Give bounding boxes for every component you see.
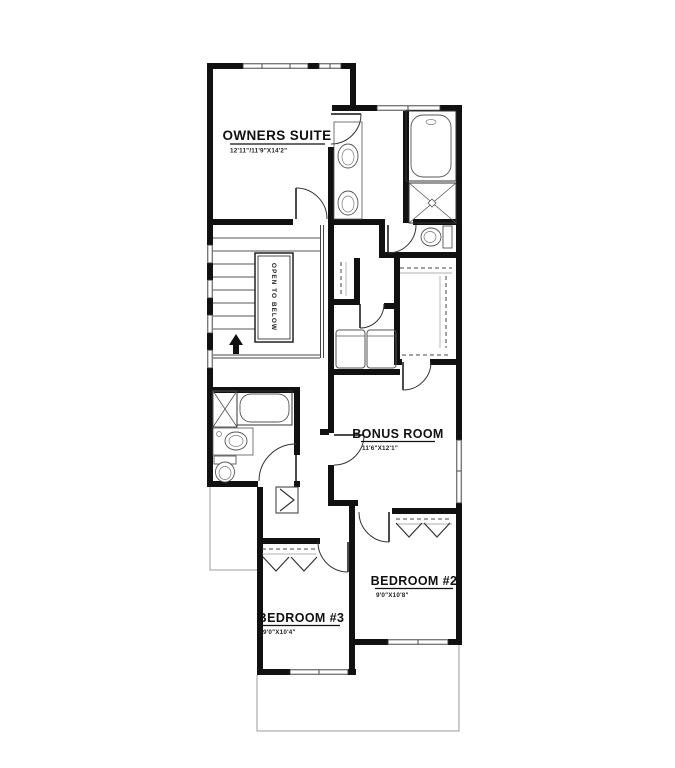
bathtub-icon	[406, 111, 456, 181]
wall-segment	[394, 258, 400, 365]
toilet-icon	[214, 456, 236, 482]
door-arc	[331, 114, 361, 144]
double-vanity	[334, 122, 362, 219]
sink-icon	[338, 191, 358, 215]
wall-segment	[328, 299, 360, 305]
wall-segment	[413, 219, 456, 225]
bifold-door	[263, 557, 317, 571]
wall-segment	[207, 219, 293, 225]
wall-segment	[294, 387, 300, 455]
window	[457, 440, 461, 503]
wall-segment	[328, 369, 400, 375]
wall-segment	[430, 359, 462, 365]
wall-segment	[348, 669, 356, 675]
linen-shelf-icon	[213, 391, 237, 427]
wall-segment	[207, 63, 213, 245]
wall-segment	[257, 669, 290, 675]
linen-closet	[276, 487, 298, 513]
wall-segment	[320, 429, 329, 435]
door-arc	[360, 304, 384, 328]
wall-segment	[354, 258, 360, 305]
window	[243, 64, 308, 68]
window	[377, 106, 440, 110]
wall-segment	[350, 639, 388, 645]
room-label-owners-suite: OWNERS SUITE 12'11"/11'9"X14'2"	[222, 128, 331, 155]
wall-segment	[207, 481, 258, 487]
wall-segment	[328, 219, 385, 225]
wall-segment	[392, 508, 456, 514]
room-label-bedroom-2: BEDROOM #2 9'0"X10'8"	[371, 574, 458, 599]
window	[208, 280, 212, 298]
window	[290, 670, 348, 674]
up-arrow-icon	[229, 334, 243, 354]
room-dims: 9'0"X10'8"	[376, 592, 409, 599]
room-name: BEDROOM #2	[371, 574, 458, 588]
shower-icon	[409, 183, 456, 223]
stairs: OPEN TO BELOW	[213, 225, 324, 358]
window	[319, 64, 341, 68]
wall-segment	[328, 465, 334, 506]
open-to-below-box: OPEN TO BELOW	[255, 253, 293, 342]
door-arc	[259, 444, 296, 481]
bifold-door	[396, 523, 450, 537]
wall-segment	[207, 368, 213, 487]
wall-segment	[328, 147, 334, 375]
wall-segment	[349, 503, 355, 675]
wall-segment	[456, 105, 462, 440]
wall-segment	[257, 487, 263, 675]
closet-rod	[262, 549, 316, 554]
bathtub-icon	[237, 391, 292, 425]
bifold-door	[280, 489, 294, 511]
wall-segment	[207, 263, 213, 280]
wall-segment	[294, 481, 300, 487]
toilet-icon	[421, 226, 452, 248]
room-name: OWNERS SUITE	[222, 128, 331, 143]
window	[208, 245, 212, 263]
wall-segment	[207, 298, 213, 315]
room-name: BEDROOM #3	[258, 611, 345, 625]
closet-rod	[400, 268, 452, 355]
wall-segment	[207, 333, 213, 350]
wall-segment	[257, 538, 320, 544]
door-arc	[359, 512, 389, 542]
door-arc	[296, 188, 327, 219]
closet-rod	[341, 262, 346, 296]
sink-icon	[213, 428, 253, 455]
door-arc	[318, 542, 348, 572]
room-dims: 9'0"X10'4"	[263, 629, 296, 636]
washer-icon	[336, 330, 365, 368]
wall-segment	[448, 639, 462, 645]
window	[388, 640, 448, 644]
room-label-bonus-room: BONUS ROOM 11'6"X12'1"	[352, 427, 444, 452]
window	[208, 315, 212, 333]
dryer-icon	[367, 330, 396, 368]
room-dims: 11'6"X12'1"	[362, 445, 398, 452]
window	[208, 350, 212, 368]
wall-segment	[308, 63, 319, 69]
door-arc	[388, 225, 416, 253]
wall-segment	[332, 105, 377, 111]
wall-segment	[384, 303, 400, 309]
open-to-below-label: OPEN TO BELOW	[270, 263, 277, 331]
wall-segment	[328, 375, 334, 433]
wall-segment	[207, 387, 300, 393]
wall-segment	[350, 63, 356, 111]
floor-plan-image: OPEN TO BELOW	[0, 0, 675, 768]
room-dims: 12'11"/11'9"X14'2"	[230, 148, 287, 155]
room-name: BONUS ROOM	[352, 427, 444, 441]
room-label-bedroom-3: BEDROOM #3 9'0"X10'4"	[258, 611, 345, 636]
floor-plan-svg: OPEN TO BELOW	[0, 0, 675, 768]
sink-icon	[338, 144, 358, 168]
door-arc	[403, 362, 431, 390]
wall-segment	[394, 359, 402, 365]
